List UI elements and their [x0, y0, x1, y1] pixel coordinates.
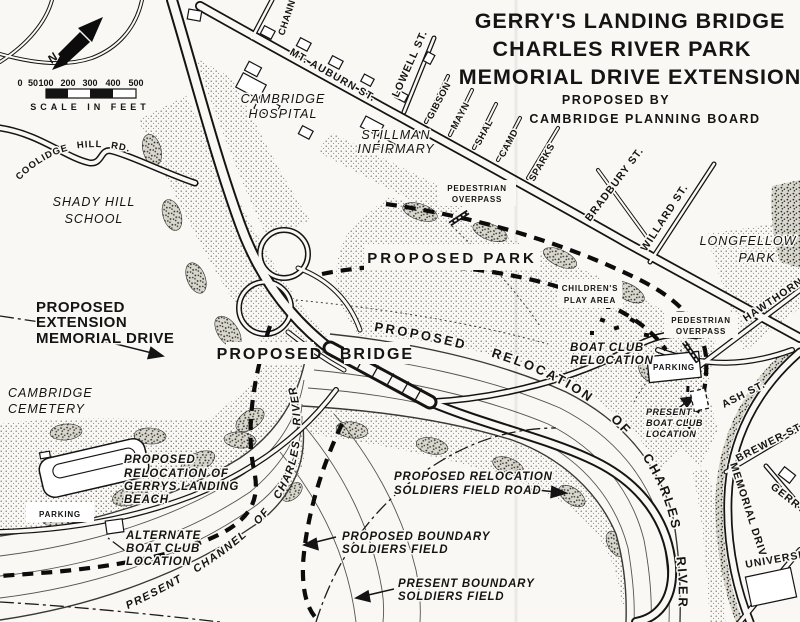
annotation-soldiers-field-road-relocation: PROPOSED RELOCATION — [394, 471, 553, 483]
place-label-cambridge-hospital: HOSPITAL — [249, 107, 318, 121]
annotation-pedestrian-overpass-west: OVERPASS — [452, 195, 502, 204]
scale-tick: 100 — [38, 78, 53, 88]
annotation-proposed-boundary-soldiers-field: PROPOSED BOUNDARY — [342, 531, 491, 543]
place-label-cambridge-cemetery: CEMETERY — [8, 402, 86, 416]
map-subtitle-line1: PROPOSED BY — [562, 93, 670, 107]
annotation-proposed-bridge: PROPOSED — [217, 346, 324, 363]
annotation-present-boat-club: LOCATION — [646, 429, 696, 439]
place-label-longfellow-park: PARK — [738, 251, 775, 265]
scale-tick: 300 — [82, 78, 97, 88]
annotation-boat-club-relocation: RELOCATION — [570, 355, 653, 367]
annotation-present-boundary-soldiers-field: PRESENT BOUNDARY — [398, 578, 535, 590]
annotation-parking-west: PARKING — [39, 510, 81, 519]
annotation-alternate-boat-club: LOCATION — [126, 556, 192, 568]
map-canvas: GERRY'S LANDING BRIDGE CHARLES RIVER PAR… — [0, 0, 800, 622]
annotation-proposed-extension: EXTENSION — [36, 314, 127, 331]
annotation-alternate-boat-club: ALTERNATE — [125, 530, 201, 542]
alternate-boat-club-building — [105, 519, 124, 534]
place-label-cambridge-cemetery: CAMBRIDGE — [8, 386, 93, 400]
scale-caption: SCALE IN FEET — [30, 102, 150, 112]
scale-tick: 50 — [28, 78, 38, 88]
place-label-shady-hill-school: SHADY HILL — [53, 195, 136, 209]
scale-tick: 0 — [17, 78, 22, 88]
place-label-longfellow-park: LONGFELLOW — [700, 234, 797, 248]
annotation-proposed-bridge: BRIDGE — [340, 346, 414, 363]
annotation-pedestrian-overpass-east: OVERPASS — [676, 327, 726, 336]
place-label-stillman-infirmary: INFIRMARY — [357, 142, 435, 156]
scale-tick: 200 — [60, 78, 75, 88]
map-title-line2: CHARLES RIVER PARK — [493, 37, 752, 61]
annotation-proposed-boundary-soldiers-field: SOLDIERS FIELD — [342, 544, 448, 556]
scale-tick: 400 — [105, 78, 120, 88]
annotation-gerrys-landing-beach: PROPOSED — [124, 454, 196, 466]
annotation-present-boat-club: PRESENT — [646, 407, 693, 417]
annotation-gerrys-landing-beach: RELOCATION OF — [124, 468, 229, 480]
place-label-shady-hill-school: SCHOOL — [65, 212, 124, 226]
annotation-boat-club-relocation: BOAT CLUB — [570, 342, 644, 354]
annotation-gerrys-landing-beach: BEACH — [124, 494, 169, 506]
annotation-present-boat-club: BOAT CLUB — [646, 418, 703, 428]
annotation-pedestrian-overpass-west: PEDESTRIAN — [447, 184, 507, 193]
place-label-stillman-infirmary: STILLMAN — [361, 128, 430, 142]
annotation-soldiers-field-road-relocation: SOLDIERS FIELD ROAD — [394, 485, 541, 497]
annotation-childrens-play-area: PLAY AREA — [564, 296, 616, 305]
scale-tick: 500 — [128, 78, 143, 88]
annotation-proposed-park: PROPOSED PARK — [367, 250, 537, 267]
planning-map: GERRY'S LANDING BRIDGE CHARLES RIVER PAR… — [0, 0, 800, 622]
annotation-pedestrian-overpass-east: PEDESTRIAN — [671, 316, 731, 325]
annotation-childrens-play-area: CHILDREN'S — [562, 284, 619, 293]
annotation-present-boundary-soldiers-field: SOLDIERS FIELD — [398, 591, 504, 603]
map-subtitle-line2: CAMBRIDGE PLANNING BOARD — [529, 112, 760, 126]
map-title-line3: MEMORIAL DRIVE EXTENSION — [459, 65, 800, 89]
annotation-gerrys-landing-beach: GERRYS LANDING — [124, 481, 239, 493]
annotation-alternate-boat-club: BOAT CLUB — [126, 543, 200, 555]
annotation-proposed-extension: MEMORIAL DRIVE — [36, 330, 174, 347]
map-title-line1: GERRY'S LANDING BRIDGE — [475, 9, 786, 33]
annotation-parking-east: PARKING — [653, 363, 695, 372]
place-label-cambridge-hospital: CAMBRIDGE — [241, 92, 326, 106]
